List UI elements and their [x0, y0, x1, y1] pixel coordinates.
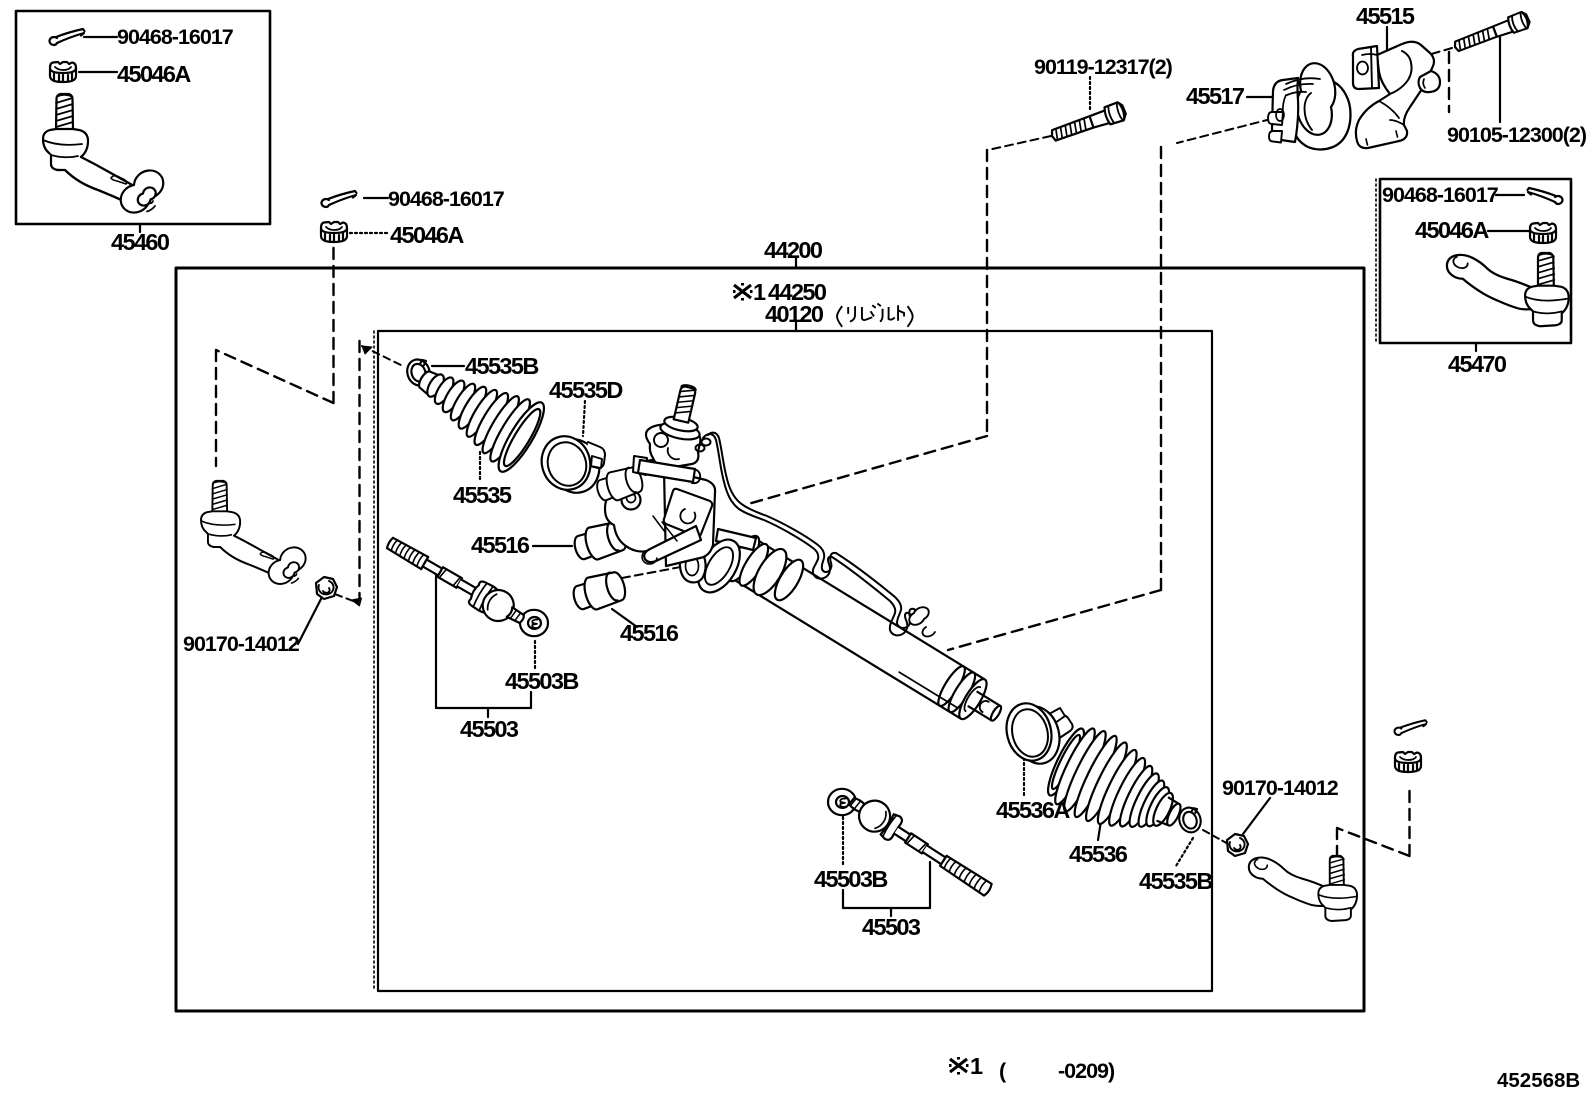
- svg-text:90468-16017: 90468-16017: [117, 25, 234, 49]
- svg-text:45536A: 45536A: [996, 797, 1070, 823]
- svg-text:45535B: 45535B: [465, 353, 538, 379]
- svg-text:-0209): -0209): [1058, 1059, 1115, 1083]
- svg-text:1: 1: [753, 279, 766, 305]
- svg-text:45046A: 45046A: [117, 61, 191, 87]
- svg-text:45470: 45470: [1448, 351, 1507, 377]
- svg-text:45460: 45460: [111, 229, 170, 255]
- svg-text:45503B: 45503B: [814, 866, 887, 892]
- svg-text:45517: 45517: [1186, 83, 1245, 109]
- svg-text:44200: 44200: [764, 237, 823, 263]
- svg-text:45535B: 45535B: [1139, 868, 1212, 894]
- svg-text:45503B: 45503B: [505, 668, 578, 694]
- svg-text:1: 1: [970, 1053, 983, 1079]
- svg-text:45535: 45535: [453, 482, 512, 508]
- svg-text:45516: 45516: [471, 532, 530, 558]
- svg-text:90170-14012: 90170-14012: [1222, 776, 1339, 800]
- svg-text:45535D: 45535D: [549, 377, 622, 403]
- svg-text:40120: 40120: [765, 301, 824, 327]
- svg-text:452568B: 452568B: [1497, 1069, 1580, 1092]
- svg-text:45503: 45503: [862, 914, 921, 940]
- svg-text:45046A: 45046A: [390, 222, 464, 248]
- svg-text:45515: 45515: [1356, 3, 1415, 29]
- svg-text:90119-12317(2): 90119-12317(2): [1034, 55, 1173, 79]
- svg-text:45046A: 45046A: [1415, 217, 1489, 243]
- svg-text:(: (: [999, 1059, 1007, 1083]
- svg-text:90468-16017: 90468-16017: [1382, 183, 1499, 207]
- svg-text:45536: 45536: [1069, 841, 1128, 867]
- svg-text:45516: 45516: [620, 620, 679, 646]
- svg-text:90105-12300(2): 90105-12300(2): [1447, 123, 1587, 147]
- svg-text:90468-16017: 90468-16017: [388, 187, 505, 211]
- svg-text:45503: 45503: [460, 716, 519, 742]
- svg-text:90170-14012: 90170-14012: [183, 632, 300, 656]
